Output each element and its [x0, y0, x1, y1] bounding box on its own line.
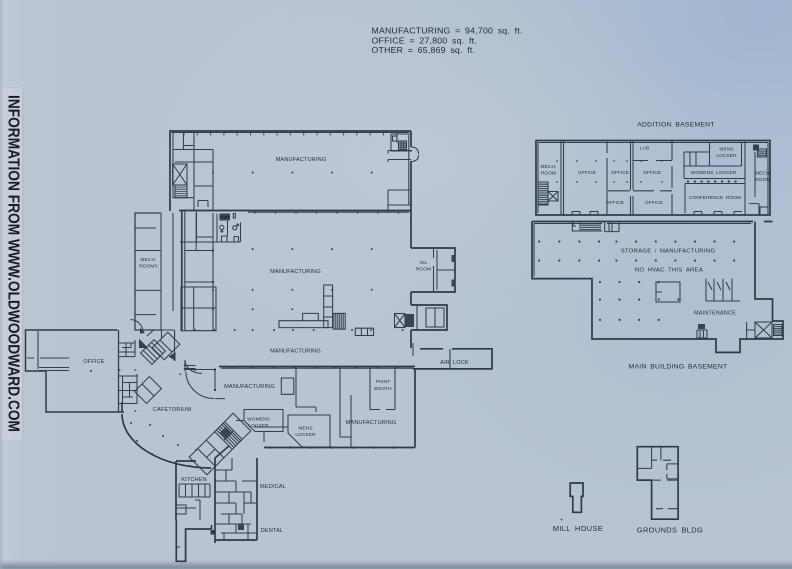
svg-text:BOOTH: BOOTH: [374, 386, 392, 392]
svg-text:CONFERENCE ROOM: CONFERENCE ROOM: [689, 195, 741, 201]
svg-text:CAFETORIUM: CAFETORIUM: [153, 407, 192, 413]
svg-text:MANUFACTURING: MANUFACTURING: [224, 384, 275, 390]
svg-text:LOCKER: LOCKER: [295, 432, 316, 438]
svg-text:OFFICE: OFFICE: [611, 170, 629, 176]
svg-text:MANUFACTURING: MANUFACTURING: [270, 349, 321, 355]
svg-text:AIR LOCK: AIR LOCK: [440, 360, 469, 366]
svg-text:KITCHEN: KITCHEN: [181, 477, 207, 483]
svg-text:MAIN BUILDING BASEMENT: MAIN BUILDING BASEMENT: [629, 364, 728, 371]
svg-text:OFFICE: OFFICE: [578, 170, 596, 176]
svg-text:PAINT: PAINT: [376, 379, 390, 385]
svg-text:MAINTENANCE: MAINTENANCE: [694, 311, 736, 317]
svg-text:OFFICE: OFFICE: [643, 170, 661, 176]
svg-text:WOMENS LOCKER: WOMENS LOCKER: [691, 170, 737, 176]
svg-text:LAB: LAB: [640, 146, 649, 152]
svg-text:MECH.: MECH.: [141, 257, 157, 263]
svg-text:OFFICE: OFFICE: [83, 359, 105, 365]
svg-text:MEDICAL: MEDICAL: [260, 484, 286, 490]
svg-text:INFORMATION FROM WWW.OLDWOODWA: INFORMATION FROM WWW.OLDWOODWARD.COM: [5, 95, 22, 432]
svg-text:MANUFACTURING: MANUFACTURING: [276, 157, 327, 163]
svg-text:OFFICE = 27,800 sq. ft.: OFFICE = 27,800 sq. ft.: [372, 36, 477, 46]
svg-text:LOCKER: LOCKER: [248, 423, 269, 429]
svg-text:LOCKER: LOCKER: [716, 153, 737, 159]
svg-text:STORAGE / MANUFACTURING: STORAGE / MANUFACTURING: [621, 249, 716, 255]
svg-text:GROUNDS BLDG: GROUNDS BLDG: [637, 526, 703, 535]
svg-text:WOMENS: WOMENS: [247, 417, 270, 423]
svg-text:MECH.: MECH.: [755, 171, 771, 177]
svg-text:OIL: OIL: [419, 260, 427, 266]
svg-text:MECH.: MECH.: [541, 164, 557, 170]
svg-text:DENTAL: DENTAL: [261, 528, 284, 534]
svg-text:MANUFACTURING: MANUFACTURING: [270, 269, 321, 275]
svg-text:OFFICE: OFFICE: [645, 200, 663, 206]
svg-text:MANUFACTURING: MANUFACTURING: [346, 420, 397, 426]
svg-text:ROOM: ROOM: [541, 171, 556, 177]
svg-text:ROOM: ROOM: [416, 267, 431, 273]
svg-text:ROOM: ROOM: [755, 177, 770, 183]
svg-text:ROOMS: ROOMS: [139, 264, 158, 270]
svg-text:OFFICE: OFFICE: [606, 200, 624, 206]
svg-text:OTHER = 65,869 sq. ft.: OTHER = 65,869 sq. ft.: [372, 45, 476, 55]
svg-text:MENS: MENS: [719, 147, 733, 153]
svg-text:ADDITION BASEMENT: ADDITION BASEMENT: [637, 122, 715, 129]
svg-text:NO HVAC THIS AREA: NO HVAC THIS AREA: [635, 268, 703, 274]
svg-text:MILL HOUSE: MILL HOUSE: [553, 524, 603, 533]
svg-text:MENS: MENS: [298, 426, 312, 432]
svg-text:MANUFACTURING = 94,700 sq. ft.: MANUFACTURING = 94,700 sq. ft.: [372, 26, 523, 36]
